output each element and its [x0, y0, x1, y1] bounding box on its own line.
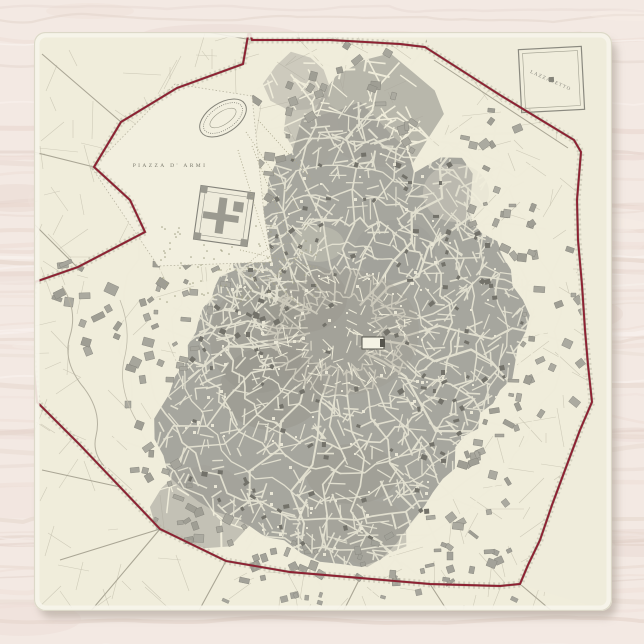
- svg-text:PIAZZA D' ARMI: PIAZZA D' ARMI: [133, 163, 208, 169]
